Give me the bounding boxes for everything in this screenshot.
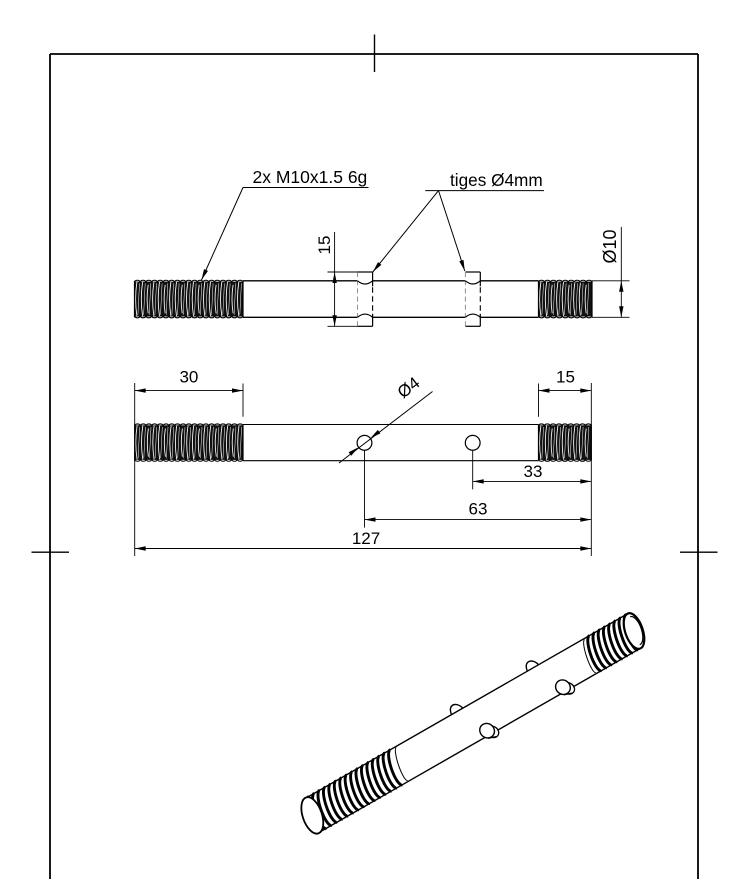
- svg-text:63: 63: [469, 499, 488, 518]
- svg-text:15: 15: [315, 236, 334, 255]
- svg-text:127: 127: [352, 529, 380, 548]
- svg-text:15: 15: [556, 368, 575, 387]
- svg-text:Ø10: Ø10: [600, 229, 620, 263]
- svg-text:tiges Ø4mm: tiges Ø4mm: [450, 170, 543, 190]
- svg-text:2x M10x1.5 6g: 2x M10x1.5 6g: [253, 167, 368, 187]
- svg-text:30: 30: [179, 368, 198, 387]
- svg-text:33: 33: [524, 462, 543, 481]
